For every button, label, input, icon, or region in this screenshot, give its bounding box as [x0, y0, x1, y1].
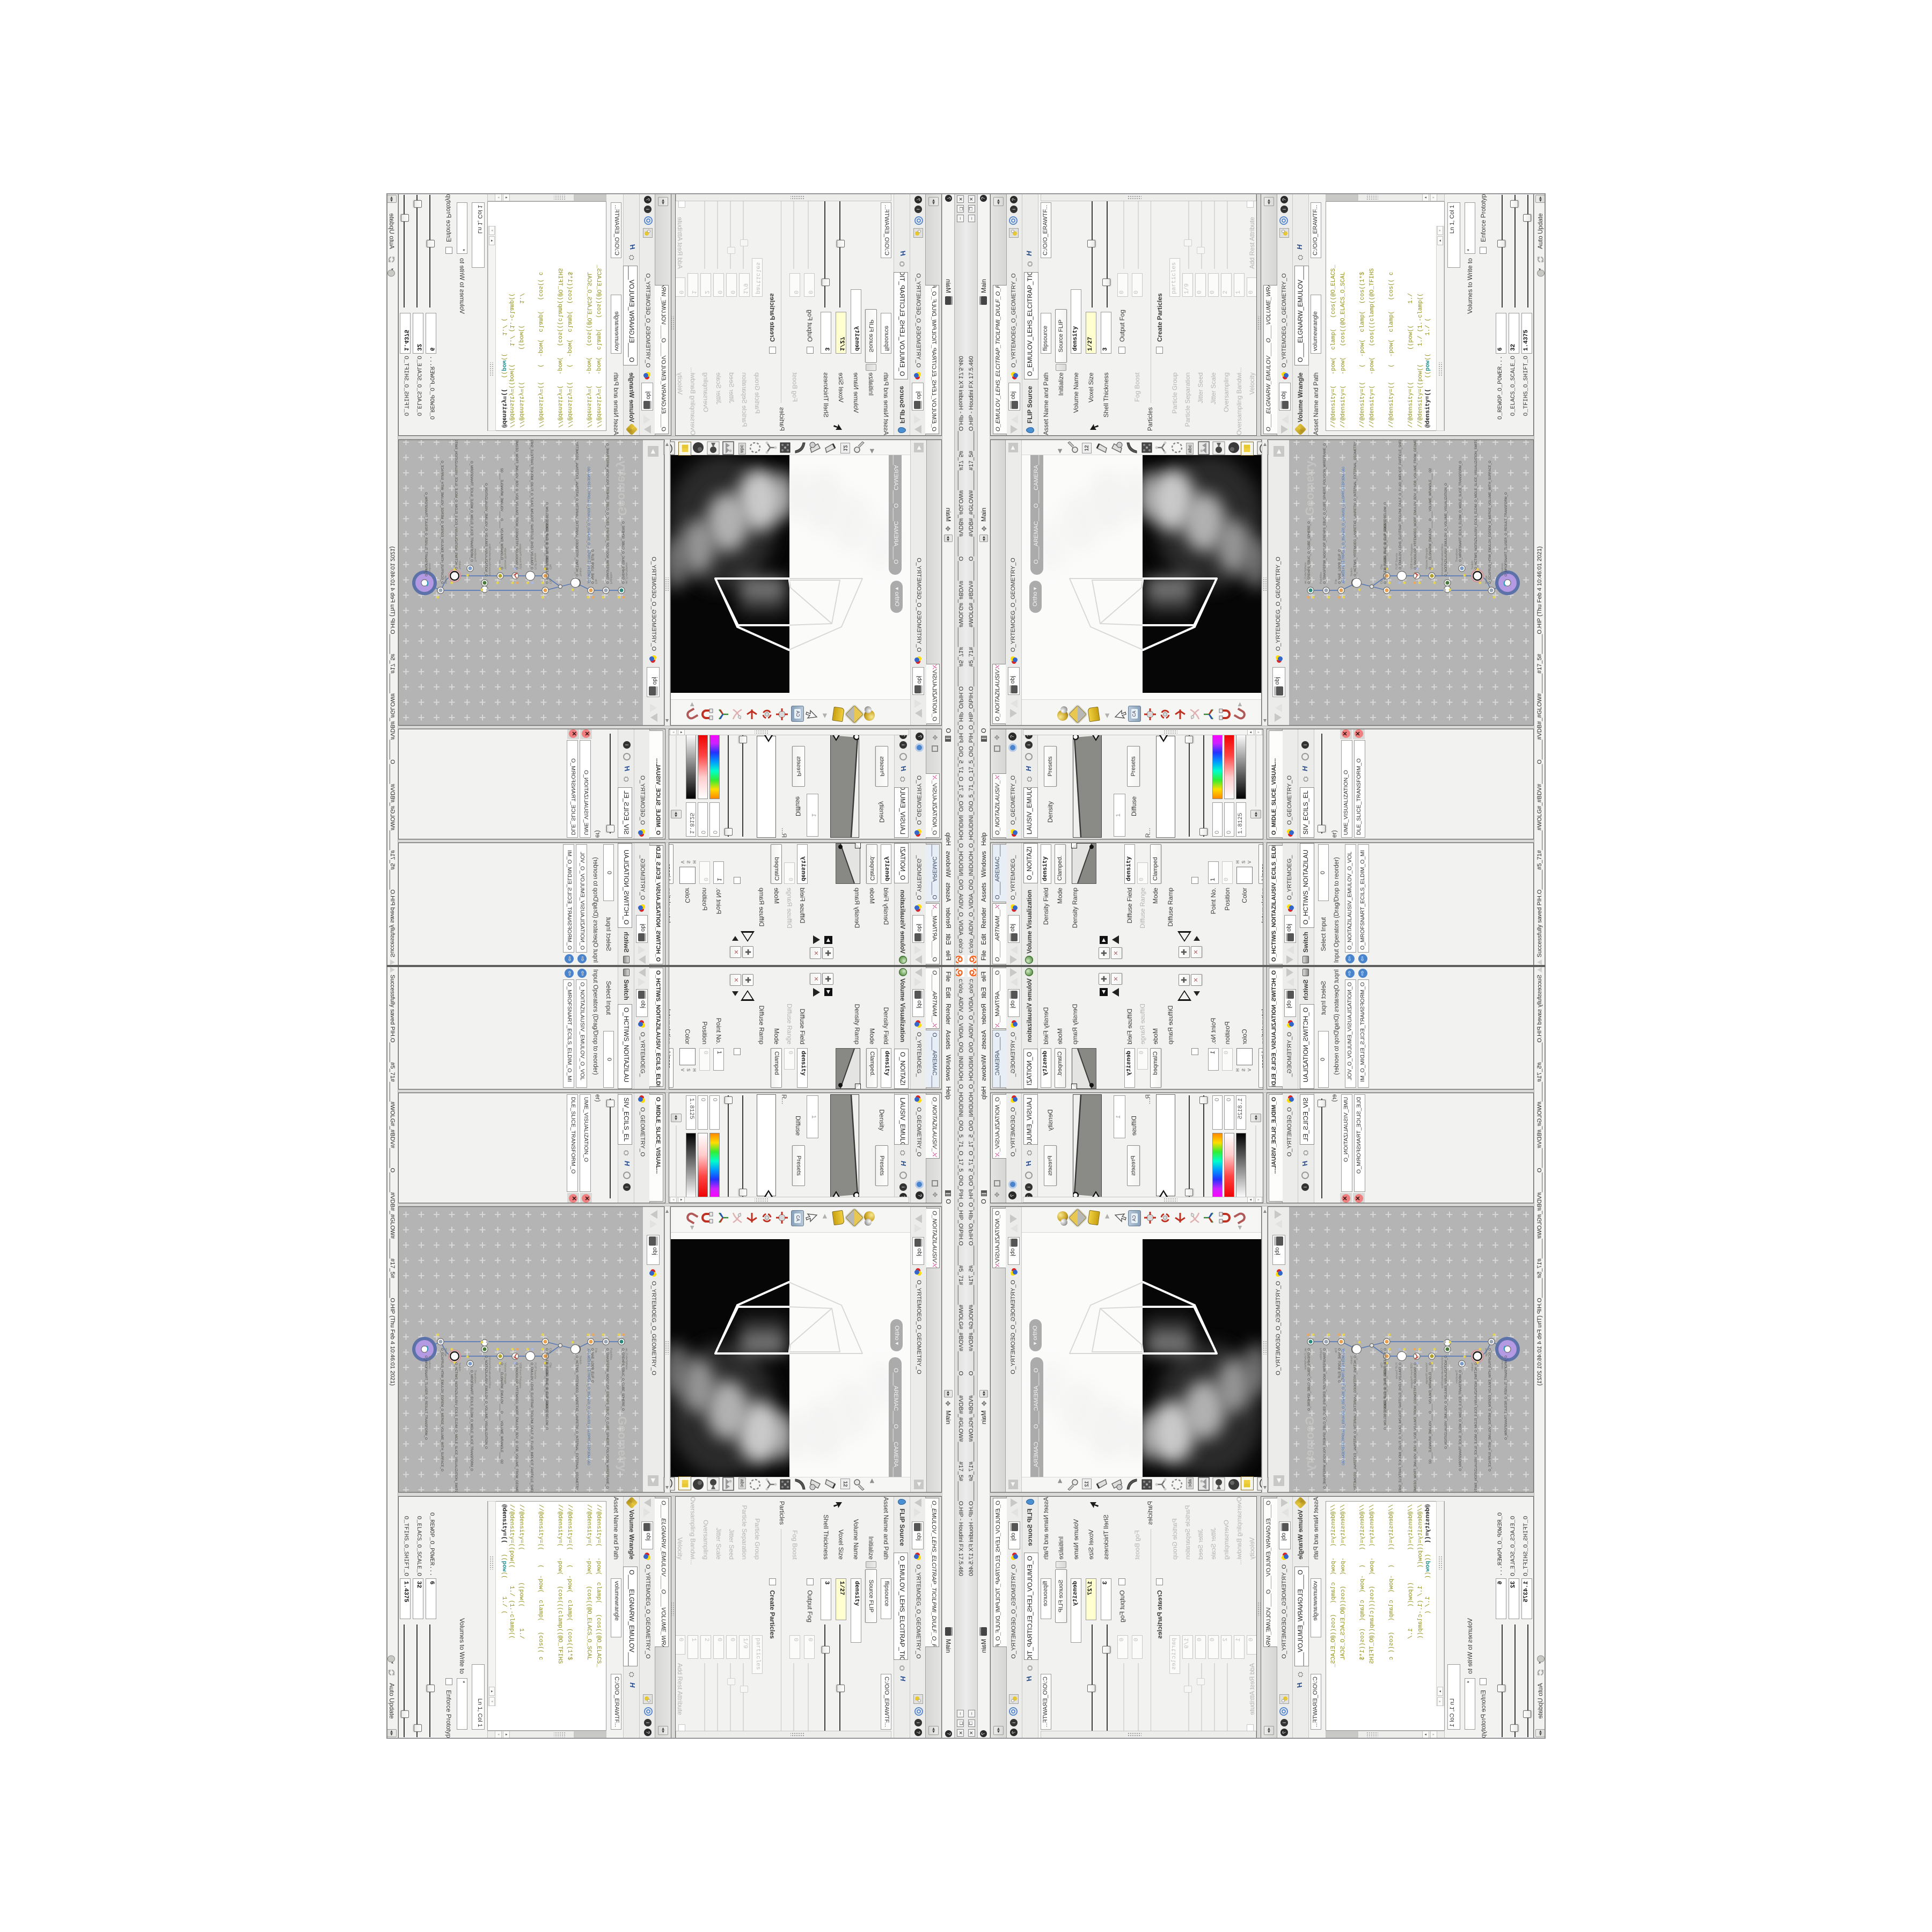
svg-text:FLIP Source: FLIP Source — [533, 1363, 537, 1379]
svg-text:Merge: Merge — [1485, 1348, 1488, 1357]
svg-text:O____ELGNARW_EMULOV____O____VO: O____ELGNARW_EMULOV____O____VOLUME_WRANG… — [1429, 1363, 1432, 1464]
svg-text:PolyWire: PolyWire — [609, 572, 612, 584]
svg-text:Transform: Transform — [1455, 548, 1459, 562]
svg-text:O____ELGNARW_EMULOV____O____VO: O____ELGNARW_EMULOV____O____VOLUME_WRANG… — [1429, 468, 1432, 569]
svg-text:Transform: Transform — [1501, 563, 1504, 576]
svg-text:O_EREHPS_EBUC_O_CUBE_SPHERE_O: O_EREHPS_EBUC_O_CUBE_SPHERE_O — [621, 1348, 624, 1411]
svg-text:Switch: Switch — [1350, 1356, 1353, 1364]
svg-text:O_ECAFRUS_HTIW_EMULOV_EGREM_O_: O_ECAFRUS_HTIW_EMULOV_EGREM_O_MERGE_VOLU… — [1489, 460, 1492, 584]
svg-text:O_MROFSNART_ECILS_ELDIM_O_MIDL: O_MROFSNART_ECILS_ELDIM_O_MIDLE_SLICE_TR… — [470, 461, 473, 562]
svg-text:O_SNOGILOP_YRTEMOEG_MORF_EMULO: O_SNOGILOP_YRTEMOEG_MORF_EMULOV_BDV_O_VD… — [1414, 1363, 1417, 1492]
svg-text:Switch: Switch — [579, 1356, 582, 1364]
svg-text:O_MROFSNART_TLUSER_O_RESULT_TR: O_MROFSNART_TLUSER_O_RESULT_TRANSFORM_O — [1505, 492, 1508, 576]
svg-text:O_EGDE_PILC_O_CLIP_EDGE_O: O_EGDE_PILC_O_CLIP_EDGE_O — [1384, 1363, 1387, 1414]
svg-text:Switch: Switch — [458, 561, 461, 569]
svg-text:O_HCTIWS_NOITAZILAUSIV_ECILS_E: O_HCTIWS_NOITAZILAUSIV_ECILS_ELDIM_O_MID… — [454, 440, 457, 569]
svg-text:VDB from Polygons: VDB from Polygons — [518, 544, 522, 569]
svg-text:Volume Wrangle: Volume Wrangle — [1425, 1363, 1429, 1384]
svg-text:O_EMASFERIW_NOGYLOP_EREHPS_EBU: O_EMASFERIW_NOGYLOP_EREHPS_EBUC_O_CUBE_S… — [1323, 1348, 1327, 1489]
svg-text:O_MROFSNART_TLUSER_O_RESULT_TR: O_MROFSNART_TLUSER_O_RESULT_TRANSFORM_O — [424, 492, 427, 576]
svg-text:O_MROFSNART_TLUSER_O_RESULT_TR: O_MROFSNART_TLUSER_O_RESULT_TRANSFORM_O — [424, 1356, 427, 1440]
svg-text:Clip: Clip — [548, 579, 552, 584]
svg-text:PolyWire: PolyWire — [1320, 572, 1323, 584]
svg-text:FLIP Source: FLIP Source — [1395, 553, 1399, 569]
svg-text:O_MROFSNART_TLUSER_O_RESULT_TR: O_MROFSNART_TLUSER_O_RESULT_TRANSFORM_O — [1505, 1356, 1508, 1440]
svg-text:Clip: Clip — [1380, 1363, 1384, 1367]
svg-text:VolumeVisualizationSlice: VolumeVisualizationSlice — [1441, 1356, 1444, 1388]
svg-text:Switch: Switch — [458, 1363, 461, 1371]
svg-text:ae_CubeSphere: ae_CubeSphere — [625, 1348, 628, 1370]
svg-text:O_HCTIWS_YRTEMOEG_LANRETXE_LAN: O_HCTIWS_YRTEMOEG_LANRETXE_LANRETNI_O_IN… — [575, 1356, 578, 1492]
svg-text:Clip: Clip — [548, 1348, 552, 1353]
svg-text:O_NAE_LOOB_ELIF_O: O_NAE_LOOB_ELIF_O — [1338, 549, 1342, 584]
svg-text:O_EREHPS_EBUC_O_CUBE_SPHERE_O: O_EREHPS_EBUC_O_CUBE_SPHERE_O — [1308, 1348, 1311, 1411]
svg-text:O_ECAFRUS_HTIW_EMULOV_EGREM_O_: O_ECAFRUS_HTIW_EMULOV_EGREM_O_MERGE_VOLU… — [440, 1348, 443, 1472]
svg-text:O_EMASFERIW_NOGYLOP_EREHPS_EBU: O_EMASFERIW_NOGYLOP_EREHPS_EBUC_O_CUBE_S… — [605, 1348, 609, 1489]
svg-text:O_EMULOV_LEHS_ELCITRAP_TICILPM: O_EMULOV_LEHS_ELCITRAP_TICILPMI_DIULF_O_… — [1399, 440, 1402, 569]
svg-text:Merge: Merge — [444, 1348, 447, 1357]
svg-text:O_HCTIWS_YRTEMOEG_LANRETXE_LAN: O_HCTIWS_YRTEMOEG_LANRETXE_LANRETNI_O_IN… — [1354, 440, 1357, 576]
svg-text:O_HCTIWS_NOITAZILAUSIV_ECILS_E: O_HCTIWS_NOITAZILAUSIV_ECILS_ELDIM_O_MID… — [1475, 440, 1478, 569]
svg-text:Merge: Merge — [1485, 575, 1488, 584]
svg-text:ae_CubeSphere: ae_CubeSphere — [1304, 1348, 1307, 1370]
svg-text:O_MROFSNART_ECILS_ELDIM_O_MIDL: O_MROFSNART_ECILS_ELDIM_O_MIDLE_SLICE_TR… — [470, 1370, 473, 1471]
svg-text:Switch: Switch — [1471, 561, 1474, 569]
svg-text:File: File — [1335, 579, 1338, 584]
svg-text:O_NOITAZILAUSIV_EMULOV_O_VOLUM: O_NOITAZILAUSIV_EMULOV_O_VOLUME_VISUALIZ… — [1445, 1356, 1448, 1449]
svg-text:VolumeVisualizationSlice: VolumeVisualizationSlice — [488, 544, 491, 576]
svg-text:O_NOITAZILAUSIV_EMULOV_O_VOLUM: O_NOITAZILAUSIV_EMULOV_O_VOLUME_VISUALIZ… — [484, 1356, 487, 1449]
svg-text:File: File — [1335, 1348, 1338, 1353]
svg-text:Geometry: Geometry — [616, 460, 629, 516]
svg-text:O_ECAFRUS_HTIW_EMULOV_EGREM_O_: O_ECAFRUS_HTIW_EMULOV_EGREM_O_MERGE_VOLU… — [440, 460, 443, 584]
svg-text:O_EREHPS_EBUC_O_CUBE_SPHERE_O: O_EREHPS_EBUC_O_CUBE_SPHERE_O — [1308, 521, 1311, 584]
svg-text:Geometry: Geometry — [1303, 460, 1316, 516]
svg-text:O_EGDE_PILC_O_CLIP_EDGE_O: O_EGDE_PILC_O_CLIP_EDGE_O — [545, 518, 548, 569]
svg-text:Transform: Transform — [428, 1356, 431, 1369]
svg-text:O_SNOGILOP_YRTEMOEG_MORF_EMULO: O_SNOGILOP_YRTEMOEG_MORF_EMULOV_BDV_O_VD… — [515, 1363, 518, 1492]
svg-text:Clip: Clip — [1380, 579, 1384, 584]
svg-text:VolumeVisualizationSlice: VolumeVisualizationSlice — [488, 1356, 491, 1388]
svg-text:O_HCTIWS_YRTEMOEG_LANRETXE_LAN: O_HCTIWS_YRTEMOEG_LANRETXE_LANRETNI_O_IN… — [1354, 1356, 1357, 1492]
svg-text:O_EMASFERIW_NOGYLOP_EREHPS_EBU: O_EMASFERIW_NOGYLOP_EREHPS_EBUC_O_CUBE_S… — [605, 443, 609, 584]
svg-text:O_NOITAZILAUSIV_EMULOV_O_VOLUM: O_NOITAZILAUSIV_EMULOV_O_VOLUME_VISUALIZ… — [1445, 483, 1448, 576]
svg-text:O_SNOGILOP_YRTEMOEG_MORF_EMULO: O_SNOGILOP_YRTEMOEG_MORF_EMULOV_BDV_O_VD… — [1414, 440, 1417, 569]
svg-text:JBO.MD3.PETS.TRPOLS_O_3SUNEG_O: JBO.MD3.PETS.TRPOLS_O_3SUNEG_O_GENUS3_O.… — [1342, 1348, 1345, 1465]
svg-text:ae_CubeSphere: ae_CubeSphere — [1304, 562, 1307, 584]
svg-text:ae_CubeSphere: ae_CubeSphere — [625, 562, 628, 584]
svg-text:Volume Wrangle: Volume Wrangle — [503, 1363, 507, 1384]
svg-text:Switch: Switch — [579, 568, 582, 576]
svg-text:FLIP Source: FLIP Source — [1395, 1363, 1399, 1379]
svg-text:O_EMULOV_LEHS_ELCITRAP_TICILPM: O_EMULOV_LEHS_ELCITRAP_TICILPMI_DIULF_O_… — [530, 440, 533, 569]
svg-text:File: File — [594, 579, 597, 584]
svg-text:O_NOITAZILAUSIV_EMULOV_O_VOLUM: O_NOITAZILAUSIV_EMULOV_O_VOLUME_VISUALIZ… — [484, 483, 487, 576]
svg-text:O_NAE_LOOB_ELIF_O: O_NAE_LOOB_ELIF_O — [590, 1348, 594, 1383]
svg-text:O_MROFSNART_ECILS_ELDIM_O_MIDL: O_MROFSNART_ECILS_ELDIM_O_MIDLE_SLICE_TR… — [1459, 1370, 1462, 1471]
svg-text:O_NAE_LOOB_ELIF_O: O_NAE_LOOB_ELIF_O — [590, 549, 594, 584]
svg-text:Geometry: Geometry — [1303, 1416, 1316, 1472]
svg-text:Switch: Switch — [1350, 568, 1353, 576]
svg-text:O_MROFSNART_ECILS_ELDIM_O_MIDL: O_MROFSNART_ECILS_ELDIM_O_MIDLE_SLICE_TR… — [1459, 461, 1462, 562]
svg-text:Switch: Switch — [1471, 1363, 1474, 1371]
svg-text:VDB from Polygons: VDB from Polygons — [518, 1363, 522, 1388]
svg-text:Volume Wrangle: Volume Wrangle — [1425, 548, 1429, 569]
svg-text:Geometry: Geometry — [616, 1416, 629, 1472]
svg-text:Clip: Clip — [548, 1363, 552, 1367]
svg-text:O_EMULOV_LEHS_ELCITRAP_TICILPM: O_EMULOV_LEHS_ELCITRAP_TICILPMI_DIULF_O_… — [530, 1363, 533, 1492]
svg-text:Transform: Transform — [1455, 1370, 1459, 1384]
svg-text:Transform: Transform — [473, 1370, 477, 1384]
svg-text:Transform: Transform — [1501, 1356, 1504, 1369]
svg-text:O_EMASFERIW_NOGYLOP_EREHPS_EBU: O_EMASFERIW_NOGYLOP_EREHPS_EBUC_O_CUBE_S… — [1323, 443, 1327, 584]
svg-text:Clip: Clip — [1380, 565, 1384, 569]
svg-text:Clip: Clip — [1380, 1348, 1384, 1353]
svg-text:Transform: Transform — [473, 548, 477, 562]
svg-text:Volume Wrangle: Volume Wrangle — [503, 548, 507, 569]
svg-text:FLIP Source: FLIP Source — [533, 553, 537, 569]
svg-text:JBO.MD3.PETS.TRPOLS_O_3SUNEG_O: JBO.MD3.PETS.TRPOLS_O_3SUNEG_O_GENUS3_O.… — [1342, 467, 1345, 584]
svg-text:O_EGDE_PILC_O_CLIP_EDGE_O: O_EGDE_PILC_O_CLIP_EDGE_O — [545, 1363, 548, 1414]
svg-text:O_EMULOV_LEHS_ELCITRAP_TICILPM: O_EMULOV_LEHS_ELCITRAP_TICILPMI_DIULF_O_… — [1399, 1363, 1402, 1492]
svg-text:O_NAE_LOOB_ELIF_O: O_NAE_LOOB_ELIF_O — [1338, 1348, 1342, 1383]
svg-text:File: File — [594, 1348, 597, 1353]
svg-text:O____ELGNARW_EMULOV____O____VO: O____ELGNARW_EMULOV____O____VOLUME_WRANG… — [500, 468, 503, 569]
svg-text:O_ECAFRUS_HTIW_EMULOV_EGREM_O_: O_ECAFRUS_HTIW_EMULOV_EGREM_O_MERGE_VOLU… — [1489, 1348, 1492, 1472]
svg-text:O_SNOGILOP_YRTEMOEG_MORF_EMULO: O_SNOGILOP_YRTEMOEG_MORF_EMULOV_BDV_O_VD… — [515, 440, 518, 569]
svg-text:JBO.MD3.PETS.TRPOLS_O_3SUNEG_O: JBO.MD3.PETS.TRPOLS_O_3SUNEG_O_GENUS3_O.… — [587, 467, 590, 584]
svg-text:PolyWire: PolyWire — [609, 1348, 612, 1360]
svg-text:VDB from Polygons: VDB from Polygons — [1410, 1363, 1414, 1388]
svg-text:O_HCTIWS_NOITAZILAUSIV_ECILS_E: O_HCTIWS_NOITAZILAUSIV_ECILS_ELDIM_O_MID… — [1475, 1363, 1478, 1492]
svg-text:Merge: Merge — [444, 575, 447, 584]
svg-text:JBO.MD3.PETS.TRPOLS_O_3SUNEG_O: JBO.MD3.PETS.TRPOLS_O_3SUNEG_O_GENUS3_O.… — [587, 1348, 590, 1465]
svg-text:Clip: Clip — [548, 565, 552, 569]
svg-text:O_HCTIWS_NOITAZILAUSIV_ECILS_E: O_HCTIWS_NOITAZILAUSIV_ECILS_ELDIM_O_MID… — [454, 1363, 457, 1492]
svg-text:O_EREHPS_EBUC_O_CUBE_SPHERE_O: O_EREHPS_EBUC_O_CUBE_SPHERE_O — [621, 521, 624, 584]
svg-text:VDB from Polygons: VDB from Polygons — [1410, 544, 1414, 569]
svg-text:PolyWire: PolyWire — [1320, 1348, 1323, 1360]
svg-text:VolumeVisualizationSlice: VolumeVisualizationSlice — [1441, 544, 1444, 576]
svg-text:O_HCTIWS_YRTEMOEG_LANRETXE_LAN: O_HCTIWS_YRTEMOEG_LANRETXE_LANRETNI_O_IN… — [575, 440, 578, 576]
svg-text:Transform: Transform — [428, 563, 431, 576]
svg-text:O_EGDE_PILC_O_CLIP_EDGE_O: O_EGDE_PILC_O_CLIP_EDGE_O — [1384, 518, 1387, 569]
svg-text:O____ELGNARW_EMULOV____O____VO: O____ELGNARW_EMULOV____O____VOLUME_WRANG… — [500, 1363, 503, 1464]
